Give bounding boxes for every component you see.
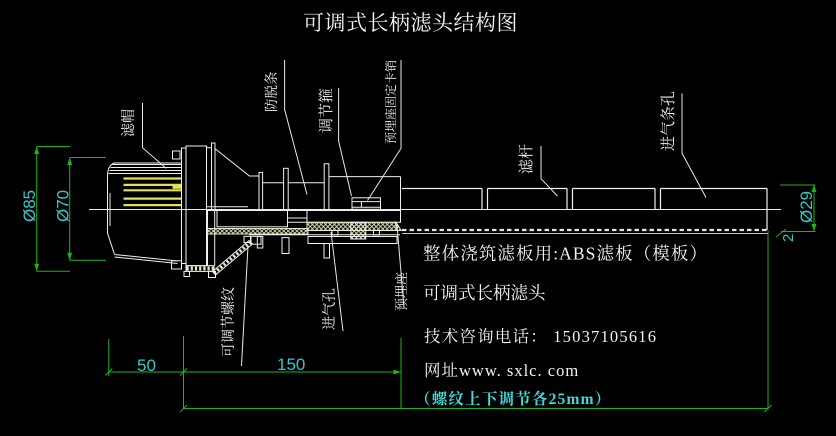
svg-text:150: 150 — [277, 355, 305, 374]
svg-text:可调节螺纹: 可调节螺纹 — [220, 287, 237, 357]
svg-text:调节箍: 调节箍 — [317, 88, 335, 133]
svg-text:Ø85: Ø85 — [20, 190, 39, 222]
svg-text:可调式长柄滤头结构图: 可调式长柄滤头结构图 — [303, 11, 518, 35]
svg-text:50: 50 — [137, 356, 156, 375]
svg-text:整体浇筑滤板用:ABS滤板（模板）: 整体浇筑滤板用:ABS滤板（模板） — [423, 244, 708, 264]
svg-text:进气孔: 进气孔 — [321, 288, 338, 330]
svg-text:预埋座: 预埋座 — [394, 272, 409, 311]
svg-text:网址www. sxlc. com: 网址www. sxlc. com — [424, 361, 579, 380]
svg-text:Ø70: Ø70 — [54, 190, 73, 222]
svg-text:技术咨询电话： 15037105616: 技术咨询电话： 15037105616 — [424, 327, 657, 346]
svg-text:进气条孔: 进气条孔 — [659, 91, 677, 151]
svg-text:滤杆: 滤杆 — [518, 144, 535, 174]
svg-text:2: 2 — [780, 234, 797, 242]
svg-text:可调式长柄滤头: 可调式长柄滤头 — [423, 283, 546, 303]
svg-text:防脱条: 防脱条 — [264, 71, 279, 112]
svg-text:滤帽: 滤帽 — [120, 109, 137, 137]
svg-text:（螺纹上下调节各25mm）: （螺纹上下调节各25mm） — [415, 389, 611, 408]
svg-text:预埋座固定卡销: 预埋座固定卡销 — [383, 60, 398, 144]
svg-text:Ø29: Ø29 — [797, 191, 816, 223]
